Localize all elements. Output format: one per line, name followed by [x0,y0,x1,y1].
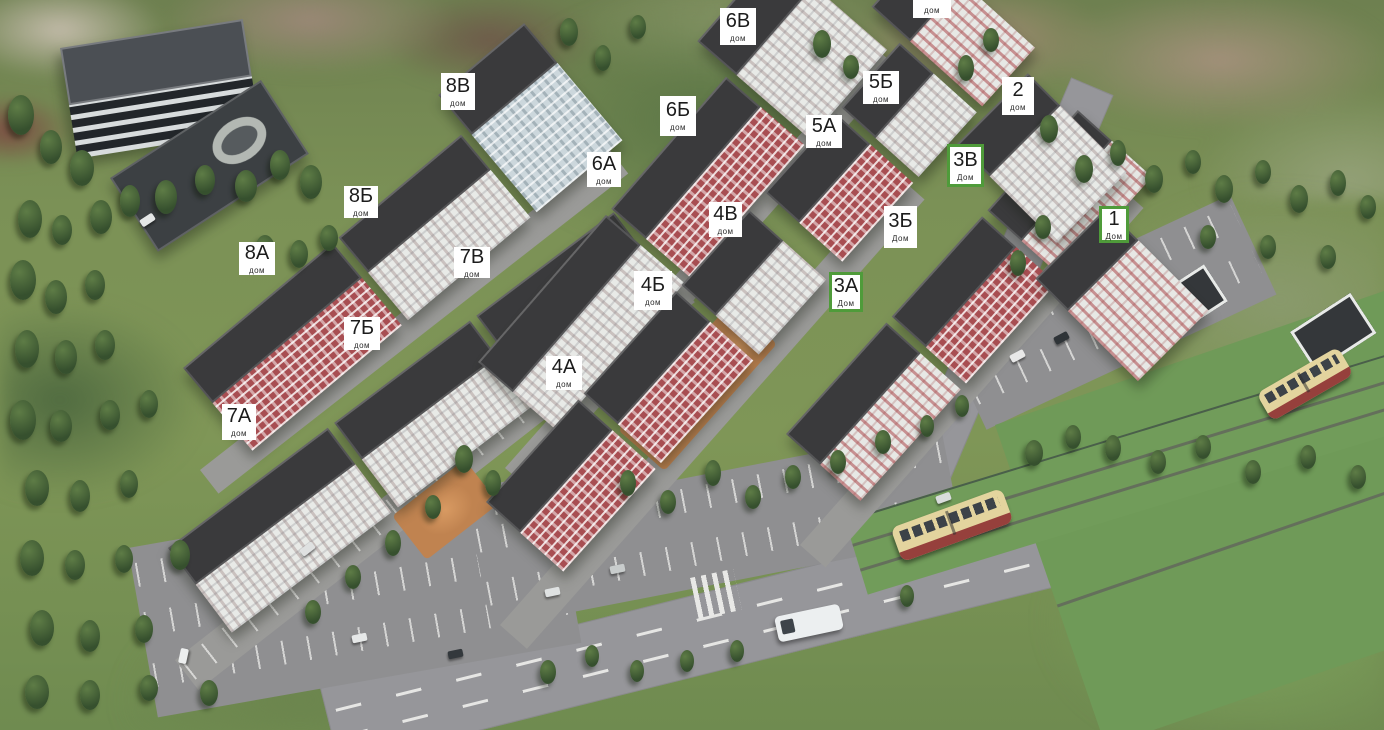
tree [52,215,72,245]
building-label-4В[interactable]: 4Вдом [709,202,742,237]
building-number: 3В [953,150,977,170]
building-number: 6Б [666,100,690,120]
tree [595,45,611,71]
tree [1185,150,1201,174]
tree [385,530,401,556]
building-sub-label: дом [556,380,572,389]
building-sub-label: Дом [1106,232,1123,241]
building-number: 4В [713,204,737,224]
tree [45,280,67,314]
building-sub-label: дом [450,99,466,108]
tree [80,620,100,652]
tree [270,150,290,180]
building-number: 6А [592,154,616,174]
tree [875,430,891,454]
building-number: 5В [920,0,944,3]
building-sub-label: дом [596,177,612,186]
building-label-7В[interactable]: 7Вдом [454,247,490,278]
building-number: 3Б [888,211,912,231]
tree [115,545,133,573]
tree [730,640,744,662]
building-sub-label: дом [249,266,265,275]
tree [1215,175,1233,203]
tree [80,680,100,710]
building-number: 7Б [350,318,374,338]
tree [540,660,556,684]
tree [15,330,39,368]
building-label-8Б[interactable]: 8Бдом [344,186,378,218]
tree [1290,185,1308,213]
tree [1145,165,1163,193]
tree [135,615,153,643]
tree [25,470,49,506]
tree [485,470,501,496]
tree [85,270,105,300]
tree [630,15,646,39]
tree [680,650,694,672]
tree [630,660,644,682]
tree [320,225,338,251]
tree [305,600,321,624]
building-sub-label: дом [354,341,370,350]
tree [1200,225,1216,249]
tree [235,170,257,202]
building-sub-label: дом [231,429,247,438]
tree [300,165,322,199]
tree [455,445,473,473]
tree [30,610,54,646]
building-number: 8А [245,243,269,263]
tree [10,400,36,440]
tree [290,240,308,268]
tree [745,485,761,509]
tree [195,165,215,195]
tree [100,400,120,430]
bus-windshield [780,618,796,635]
tree [560,18,578,46]
tree [95,330,115,360]
building-sub-label: дом [353,209,369,218]
tree [20,540,44,576]
tree [120,470,138,498]
building-sub-label: дом [717,227,733,236]
tree [140,390,158,418]
building-sub-label: дом [645,298,661,307]
building-label-6В[interactable]: 6Вдом [720,8,756,45]
masterplan-scene: 5Вдом6Вдом8Вдом5Бдом2дом6Бдом5Адом3ВДом6… [0,0,1384,730]
building-label-1[interactable]: 1Дом [1099,206,1129,243]
tree [55,340,77,374]
tree [1025,440,1043,466]
building-sub-label: дом [816,139,832,148]
tree [1105,435,1121,461]
tree [140,675,158,701]
tree [65,550,85,580]
building-sub-label: дом [924,6,940,15]
building-label-2[interactable]: 2дом [1002,77,1034,115]
tree [25,675,49,709]
building-sub-label: дом [1010,103,1026,112]
building-number: 7А [227,406,251,426]
tree [1320,245,1336,269]
building-label-8А[interactable]: 8Адом [239,242,275,275]
building-sub-label: дом [873,95,889,104]
building-label-6Б[interactable]: 6Бдом [660,96,696,136]
building-label-3Б[interactable]: 3БДом [884,206,917,248]
building-number: 5А [812,116,836,136]
tree [620,470,636,496]
tree [1255,160,1271,184]
building-number: 7В [460,247,484,267]
building-label-3В[interactable]: 3ВДом [947,144,984,187]
tree [1260,235,1276,259]
tree [1110,140,1126,166]
tree [120,185,140,217]
building-number: 8Б [349,186,373,206]
tree [90,200,112,234]
tree [1195,435,1211,459]
tree [425,495,441,519]
tree [200,680,218,706]
tree [813,30,831,58]
tree [585,645,599,667]
tree [1330,170,1346,196]
tree [705,460,721,486]
building-label-7Б[interactable]: 7Бдом [344,317,380,350]
tree [50,410,72,442]
building-number: 3А [834,276,858,296]
tree [1245,460,1261,484]
building-sub-label: дом [464,270,480,279]
tree [958,55,974,81]
tree [1035,215,1051,239]
tree [155,180,177,214]
tree [660,490,676,514]
building-number: 4Б [641,275,665,295]
building-label-5Б[interactable]: 5Бдом [863,71,899,104]
building-label-4А[interactable]: 4Адом [546,356,582,390]
building-number: 2 [1012,80,1023,100]
building-sub-label: Дом [957,173,974,182]
tree [18,200,42,238]
crosswalk [690,569,742,619]
tree [40,130,62,164]
tree [1150,450,1166,474]
building-number: 6В [726,11,750,31]
tree [1360,195,1376,219]
garage-ramp-ring [204,107,276,174]
tree [1075,155,1093,183]
building-label-5А[interactable]: 5Адом [806,115,842,148]
tree [170,540,190,570]
building-sub-label: Дом [838,299,855,308]
tree [920,415,934,437]
building-sub-label: дом [670,123,686,132]
tree [900,585,914,607]
tree [70,480,90,512]
building-label-3А[interactable]: 3АДом [829,272,863,312]
building-label-8В[interactable]: 8Вдом [441,73,475,110]
tree [1300,445,1316,469]
building-sub-label: дом [730,34,746,43]
tree [70,150,94,186]
tree [1350,465,1366,489]
building-label-6А[interactable]: 6Адом [587,152,621,187]
tree [1040,115,1058,143]
tree [345,565,361,589]
tree [983,28,999,52]
building-sub-label: Дом [892,234,909,243]
tree [785,465,801,489]
tree [1065,425,1081,449]
tree [843,55,859,79]
tree [1010,250,1026,276]
building-number: 4А [552,357,576,377]
building-label-7А[interactable]: 7Адом [222,404,256,440]
tree [830,450,846,474]
tree [10,260,36,300]
building-number: 1 [1108,209,1119,229]
building-number: 5Б [869,72,893,92]
building-label-5В[interactable]: 5Вдом [913,0,951,18]
building-label-4Б[interactable]: 4Бдом [634,271,672,310]
building-number: 8В [446,76,470,96]
tree [955,395,969,417]
tree [8,95,34,135]
